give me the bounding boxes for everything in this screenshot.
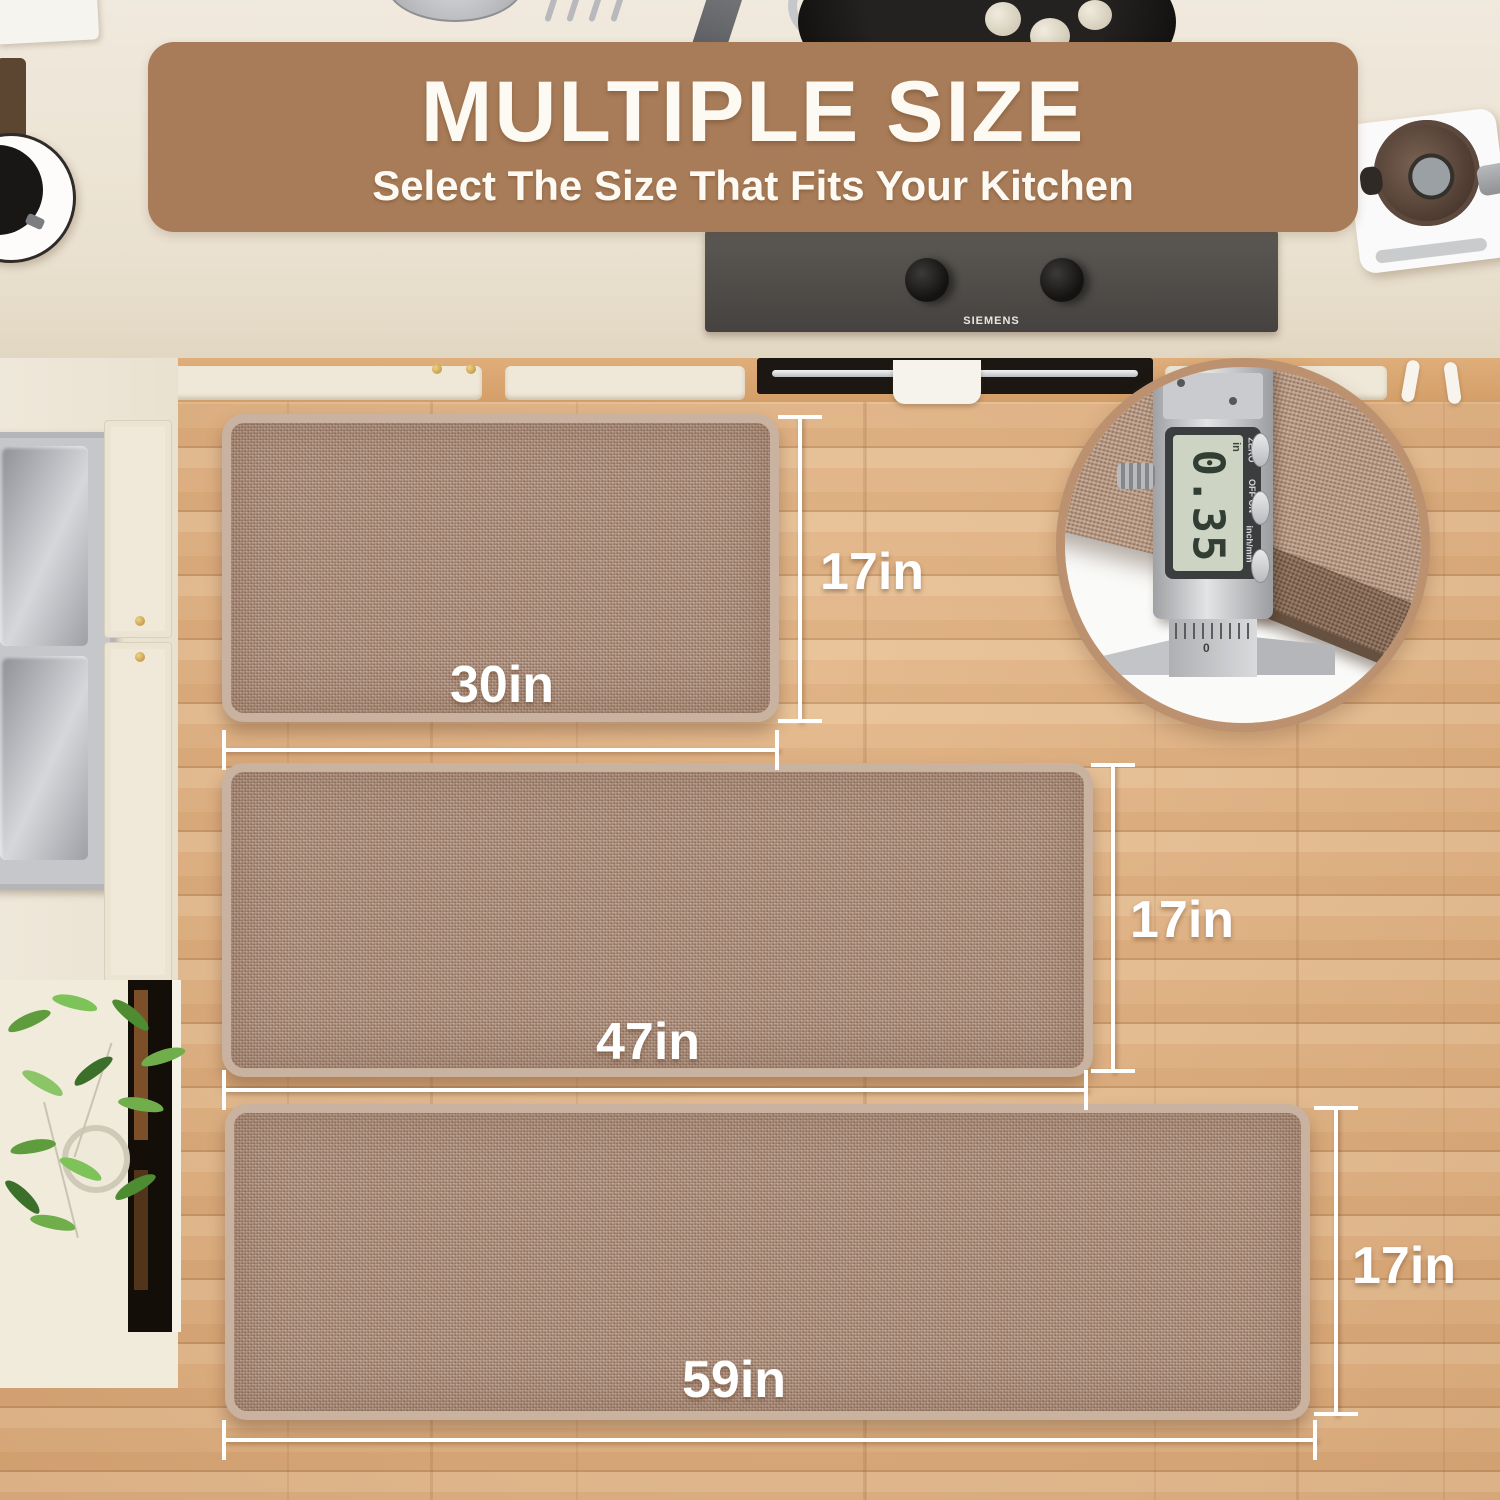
dimension-line-horizontal [222,1088,1088,1092]
garlic [1078,0,1112,30]
leaf [109,995,153,1035]
drawer-knob [466,364,476,374]
kettle-base [1375,237,1488,264]
caliper-button [1251,433,1270,467]
cooktop-knob [905,258,949,302]
screw [1229,397,1237,405]
leaf [9,1136,57,1157]
cabinet-door [104,420,172,638]
cooktop: SIEMENS [705,230,1278,332]
caliper-body: 0.35 in ZERO OFF ON inch/mm [1153,361,1273,619]
drawer-knob [432,364,442,374]
cooktop-knob [1040,258,1084,302]
cabinet-knob [135,616,145,626]
headline-banner: MULTIPLE SIZE Select The Size That Fits … [148,42,1358,232]
fork [548,0,648,30]
dimension-label: 17in [820,542,924,602]
caliper-lower-bar: 0 [1169,619,1257,677]
screw [1177,379,1185,387]
fork-tine [610,0,624,22]
garlic [985,2,1021,36]
dimension-line-horizontal [222,748,779,752]
drawer-front [505,366,745,400]
appliance-lower-panel [0,656,88,860]
towel [893,360,981,404]
leaf [139,1043,187,1070]
coffee-machine-body [0,58,26,142]
leaf [117,1094,165,1115]
dimension-line-vertical [1334,1106,1338,1416]
dimension-line-vertical [798,415,802,723]
leaf [2,1176,44,1217]
caliper-scale-ticks [1175,623,1251,639]
dimension-line-horizontal [222,1438,1317,1442]
caliper-lcd: 0.35 in [1173,435,1243,571]
caliper-screen-frame: 0.35 in ZERO OFF ON inch/mm [1165,427,1261,579]
electric-kettle [1343,107,1500,274]
caliper-scale-zero: 0 [1203,641,1210,655]
caliper-button [1251,549,1270,583]
leaf [51,991,99,1015]
dimension-label: 17in [1352,1236,1456,1296]
leaf [5,1005,52,1036]
caliper-thumbwheel [1117,463,1155,489]
dimension-label: 30in [450,655,554,715]
cabinet-door [104,642,172,982]
white-box [0,0,99,45]
product-infographic: SIEMENS 17in 30in 17in 47in 17in 59in 0.… [0,0,1500,1500]
dimension-label: 47in [596,1012,700,1072]
cabinet-knob [135,652,145,662]
leaf [29,1211,77,1233]
fork-tine [566,0,580,22]
leaf [71,1052,116,1090]
appliance-upper-panel [0,446,88,646]
cooktop-brand: SIEMENS [705,315,1278,327]
banner-subtitle: Select The Size That Fits Your Kitchen [148,162,1358,210]
leaf [112,1169,158,1203]
caliper-reading: 0.35 [1183,440,1234,572]
dimension-line-vertical [1111,763,1115,1073]
dimension-label: 59in [682,1350,786,1410]
leaf [20,1065,66,1099]
caliper-unit: in [1230,442,1242,452]
caliper-top-plate [1163,373,1263,419]
stainless-appliance [0,432,116,890]
caliper-button [1251,491,1270,525]
thickness-inset-circle: 0.35 in ZERO OFF ON inch/mm 0 [1056,358,1430,732]
plant [0,980,210,1290]
fork-tine [588,0,602,22]
banner-title: MULTIPLE SIZE [148,64,1358,160]
dimension-label: 17in [1130,890,1234,950]
